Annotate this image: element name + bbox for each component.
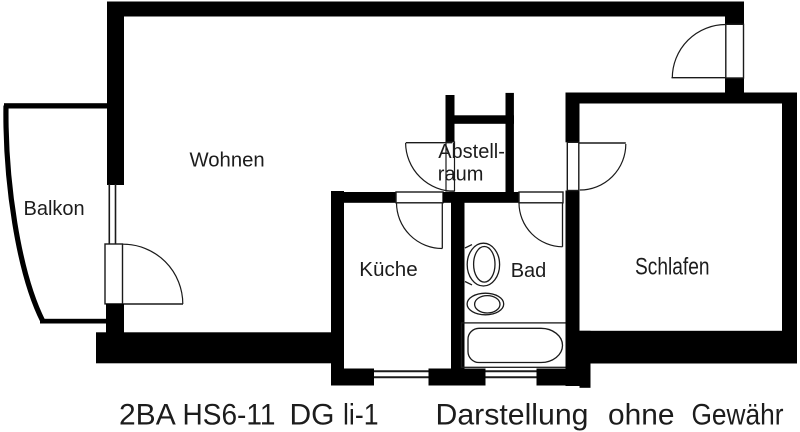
- svg-text:Bad: Bad: [511, 260, 547, 282]
- svg-text:Küche: Küche: [359, 258, 417, 281]
- svg-text:raum: raum: [438, 164, 484, 186]
- svg-text:Balkon: Balkon: [24, 198, 85, 220]
- svg-text:Schlafen: Schlafen: [635, 254, 710, 281]
- svg-text:DarstellungohneGewähr: DarstellungohneGewähr: [436, 399, 784, 432]
- svg-text:Abstell-: Abstell-: [438, 141, 505, 163]
- svg-text:Wohnen: Wohnen: [190, 149, 265, 171]
